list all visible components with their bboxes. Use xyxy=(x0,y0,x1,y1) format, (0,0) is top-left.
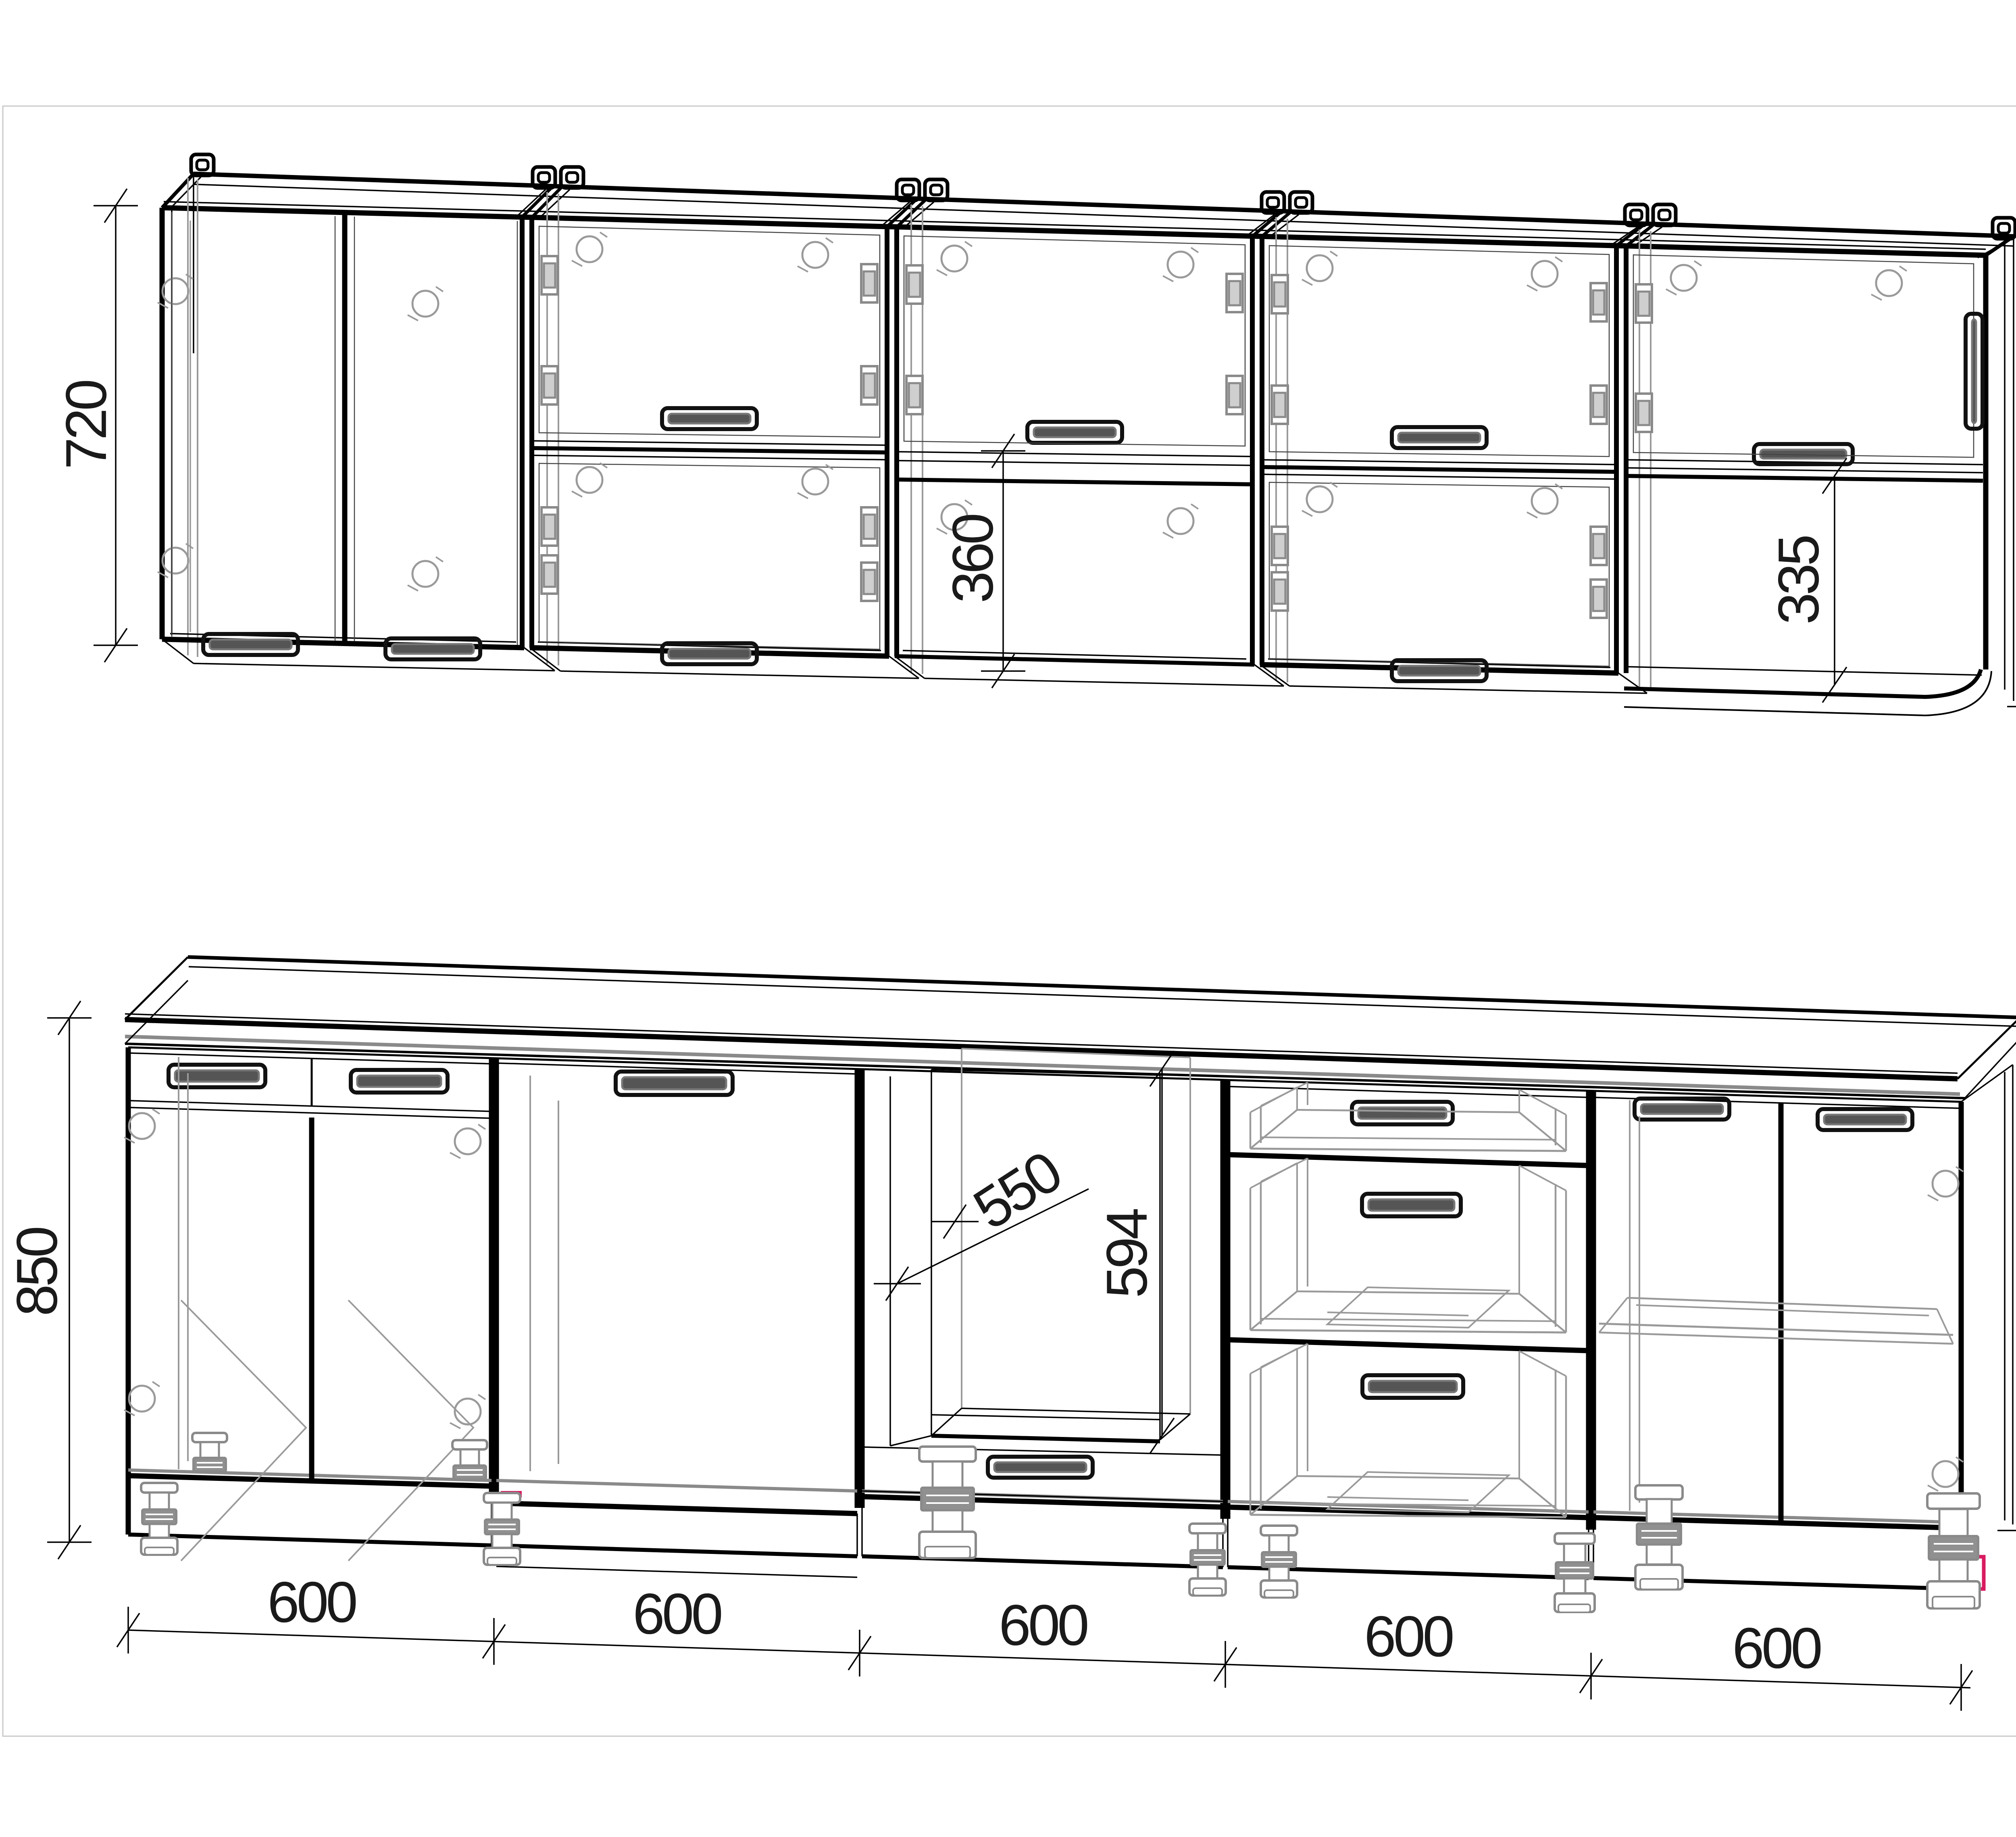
svg-text:600: 600 xyxy=(999,1593,1087,1658)
svg-text:600: 600 xyxy=(633,1582,721,1646)
svg-text:360: 360 xyxy=(941,515,1005,603)
svg-text:720: 720 xyxy=(54,381,119,469)
svg-text:594: 594 xyxy=(1095,1209,1159,1298)
svg-text:600: 600 xyxy=(267,1570,356,1635)
svg-text:600: 600 xyxy=(1364,1605,1452,1669)
svg-text:335: 335 xyxy=(1767,536,1831,625)
svg-text:850: 850 xyxy=(5,1228,69,1316)
svg-text:600: 600 xyxy=(1732,1616,1820,1681)
